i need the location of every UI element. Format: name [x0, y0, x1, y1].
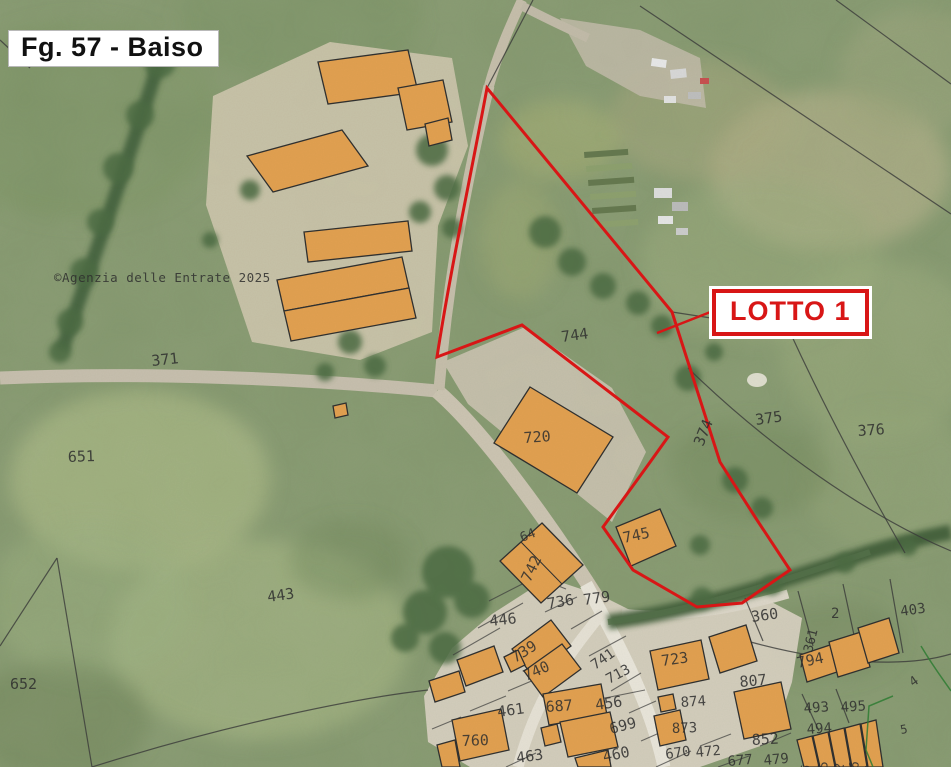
- parcel-label-360: 360: [750, 604, 779, 626]
- parcel-label-371: 371: [151, 349, 180, 370]
- sheet-title-box: Fg. 57 - Baiso: [8, 30, 219, 67]
- parcel-label-376: 376: [857, 420, 885, 440]
- parcel-label-446: 446: [489, 609, 518, 630]
- parcel-label-2: 2: [831, 606, 839, 622]
- parcel-label-463: 463: [515, 745, 544, 767]
- aerial-cadastral-map: 371 651 652 443 744 720 745 374 375 376 …: [0, 0, 951, 767]
- parcel-label-723: 723: [660, 648, 689, 670]
- parcel-label-852: 852: [751, 730, 779, 749]
- parcel-label-677: 677: [727, 752, 754, 767]
- parcel-label-873: 873: [672, 720, 698, 737]
- parcel-label-807: 807: [739, 671, 768, 691]
- parcel-label-472: 472: [695, 743, 722, 761]
- parcel-label-495: 495: [840, 698, 866, 716]
- parcel-label-651: 651: [68, 447, 96, 466]
- lotto1-label: LOTTO 1: [712, 289, 869, 336]
- parcel-label-779: 779: [582, 587, 611, 609]
- lotto1-label-box: LOTTO 1: [709, 286, 872, 339]
- parcel-label-443: 443: [266, 584, 295, 606]
- parcel-label-461: 461: [496, 699, 525, 721]
- parcel-label-479: 479: [763, 751, 790, 767]
- parcel-label-720: 720: [523, 427, 551, 447]
- parcel-label-652: 652: [10, 675, 37, 693]
- parcel-label-375: 375: [754, 407, 783, 429]
- parcel-label-744: 744: [560, 324, 589, 346]
- parcel-label-493: 493: [803, 699, 829, 717]
- cadastral-map-screenshot: 371 651 652 443 744 720 745 374 375 376 …: [0, 0, 951, 767]
- parcel-label-874: 874: [680, 693, 706, 711]
- parcel-label-760: 760: [462, 731, 490, 750]
- parcel-label-687: 687: [545, 696, 573, 716]
- parcel-label-494: 494: [806, 720, 832, 738]
- sheet-title: Fg. 57 - Baiso: [21, 32, 204, 62]
- copyright-watermark: ©Agenzia delle Entrate 2025: [54, 270, 271, 285]
- parcel-label-456: 456: [594, 692, 623, 714]
